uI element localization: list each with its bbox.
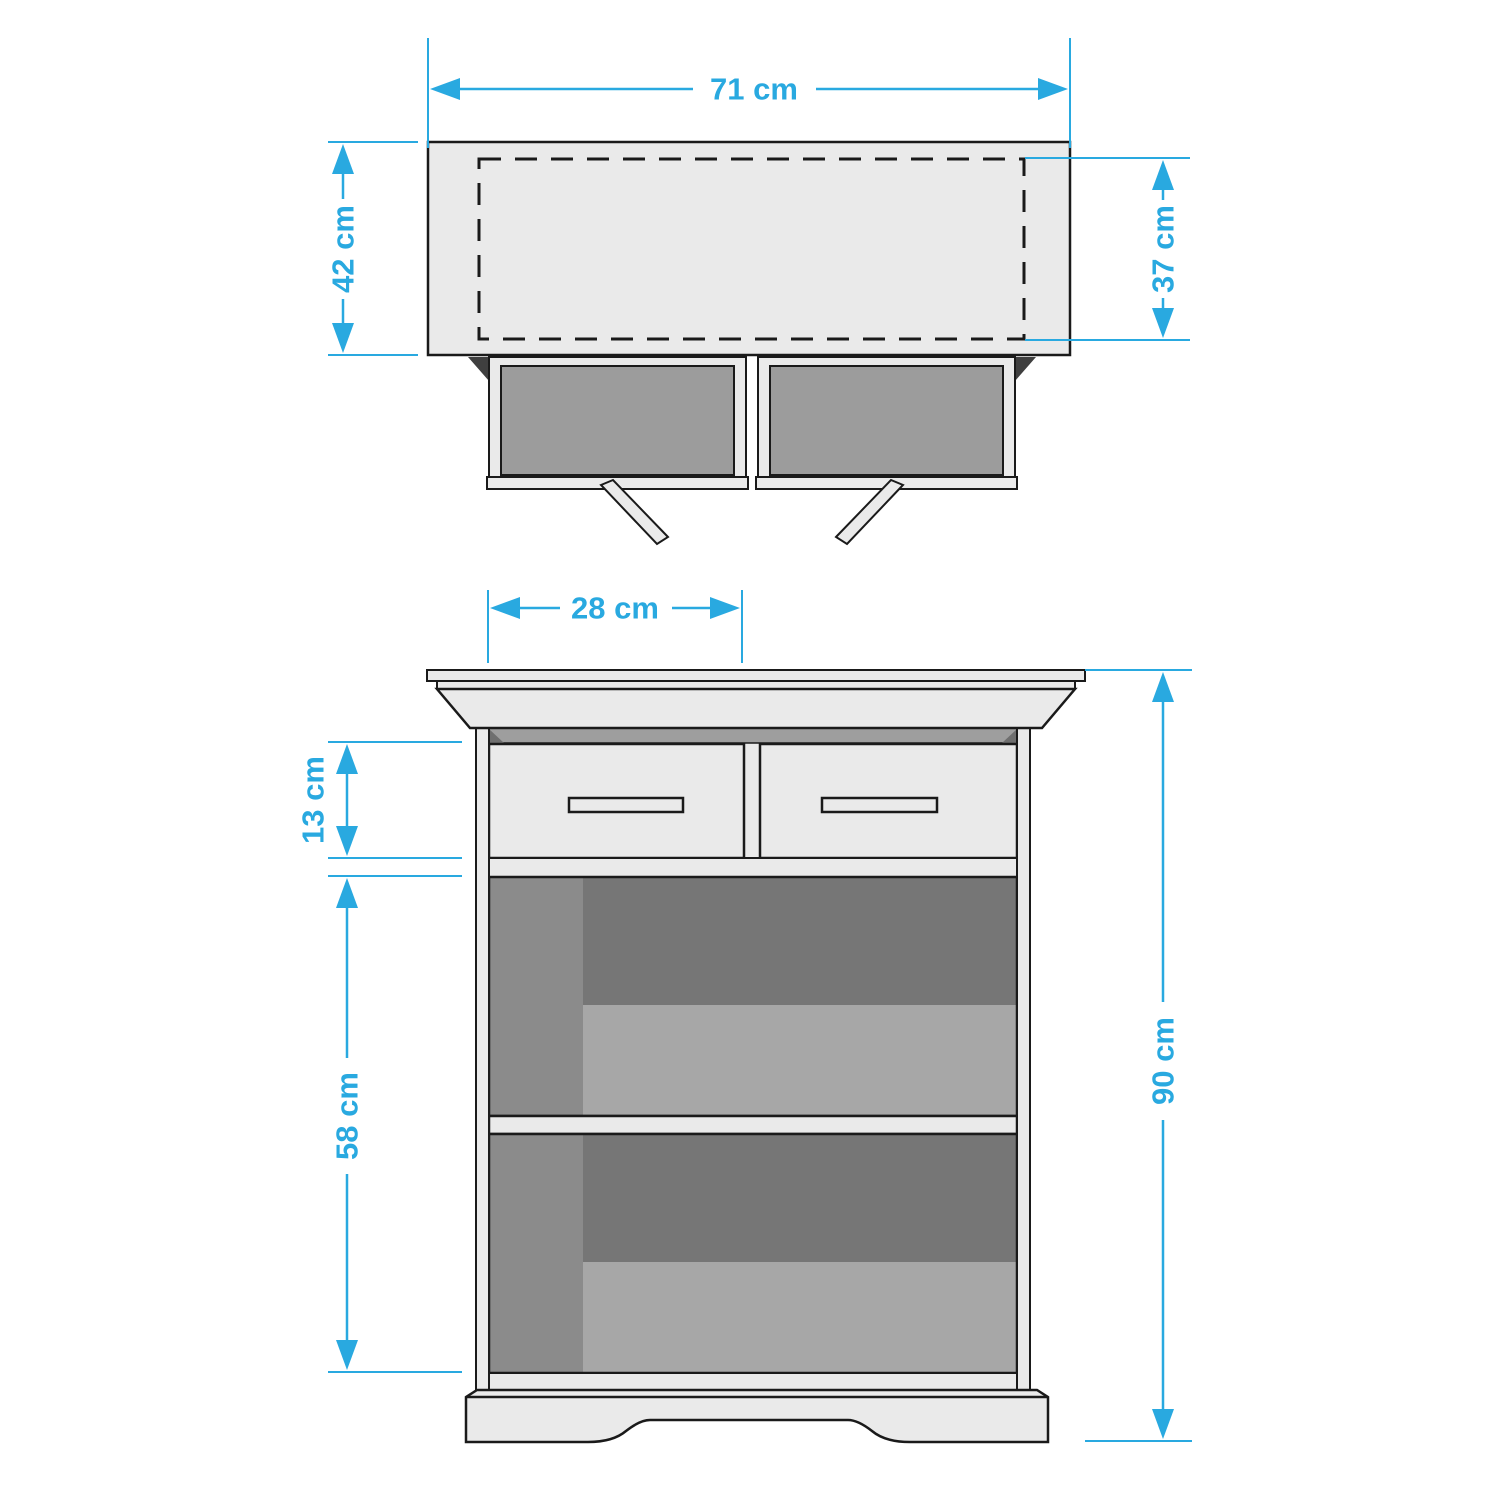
arrowhead-right-icon (710, 597, 740, 619)
top-view (428, 142, 1070, 544)
dim-label-inner-depth: 37 cm (1146, 205, 1181, 293)
lower-compartment-side-shadow (489, 1134, 583, 1373)
dim-label-open-section-height: 58 cm (330, 1072, 365, 1160)
lower-compartment (489, 1134, 1017, 1373)
arrowhead-up-icon (332, 144, 354, 174)
arrowhead-up-icon (1152, 160, 1174, 190)
dimension-top-width: 71 cm (428, 38, 1070, 148)
right-side-wall (1017, 728, 1030, 1390)
cornice (437, 689, 1075, 728)
left-corner-wedge (468, 357, 489, 381)
rail-under-drawers (489, 858, 1017, 877)
arrowhead-down-icon (1152, 1409, 1174, 1439)
arrowhead-left-icon (430, 78, 460, 100)
dim-label-drawer-front-height: 13 cm (296, 756, 331, 844)
bottom-rail (489, 1373, 1017, 1390)
dimension-open-section-height: 58 cm (328, 876, 462, 1372)
arrowhead-down-icon (336, 1340, 358, 1370)
top-board (427, 670, 1085, 681)
dim-label-overall-height: 90 cm (1146, 1017, 1181, 1105)
right-drawer-handle (822, 798, 937, 812)
furniture-dimension-diagram: 71 cm 42 cm 37 cm 28 cm (0, 0, 1500, 1500)
top-shadow-band (489, 728, 1017, 743)
top-panel (428, 142, 1070, 355)
upper-compartment-side-shadow (489, 877, 583, 1116)
dimension-drawer-width: 28 cm (488, 590, 742, 663)
dimension-top-depth: 42 cm (326, 142, 419, 355)
diagram-canvas: 71 cm 42 cm 37 cm 28 cm (0, 0, 1500, 1500)
upper-compartment (489, 877, 1017, 1116)
dim-label-drawer-width: 28 cm (571, 591, 659, 626)
left-drawer-interior (501, 366, 734, 475)
dim-label-top-width: 71 cm (710, 72, 798, 107)
left-drawer-top-view (487, 357, 748, 544)
dim-label-top-depth: 42 cm (326, 205, 361, 293)
arrowhead-left-icon (490, 597, 520, 619)
arrowhead-down-icon (336, 826, 358, 856)
left-side-wall (476, 728, 489, 1390)
dimension-overall-height: 90 cm (1085, 670, 1192, 1441)
arrowhead-up-icon (336, 878, 358, 908)
dimension-drawer-front-height: 13 cm (296, 742, 463, 858)
right-drawer-interior (770, 366, 1003, 475)
middle-shelf (489, 1116, 1017, 1134)
right-drawer-top-view (756, 357, 1017, 544)
arrowhead-down-icon (332, 323, 354, 353)
right-corner-wedge (1015, 357, 1036, 381)
arrowhead-up-icon (1152, 672, 1174, 702)
arrowhead-up-icon (336, 744, 358, 774)
arrowhead-down-icon (1152, 308, 1174, 338)
left-drawer-handle (569, 798, 683, 812)
front-view (427, 670, 1085, 1442)
arrowhead-right-icon (1038, 78, 1068, 100)
